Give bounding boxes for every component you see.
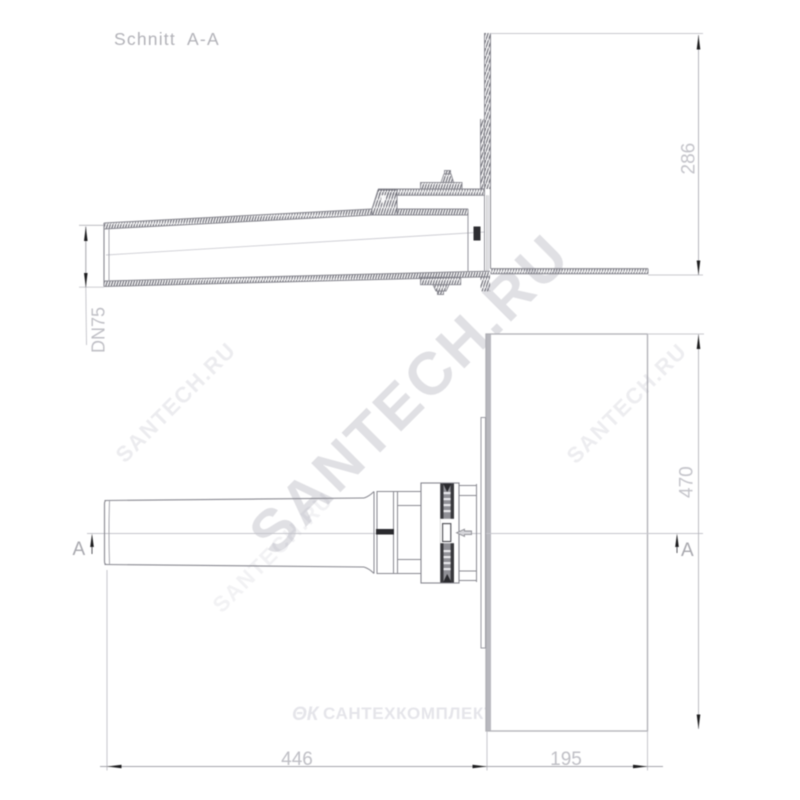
svg-text:ΘК: ΘК [292,704,320,725]
svg-text:Schnitt A-A: Schnitt A-A [114,29,220,49]
svg-text:A: A [73,539,86,560]
svg-text:286: 286 [679,143,700,175]
svg-text:446: 446 [281,749,313,770]
svg-text:470: 470 [677,466,698,498]
svg-text:A: A [681,540,694,561]
svg-text:195: 195 [550,749,582,770]
svg-text:DN75: DN75 [89,307,109,353]
svg-text:САНТЕХКОМПЛЕКТ: САНТЕХКОМПЛЕКТ [323,704,495,723]
